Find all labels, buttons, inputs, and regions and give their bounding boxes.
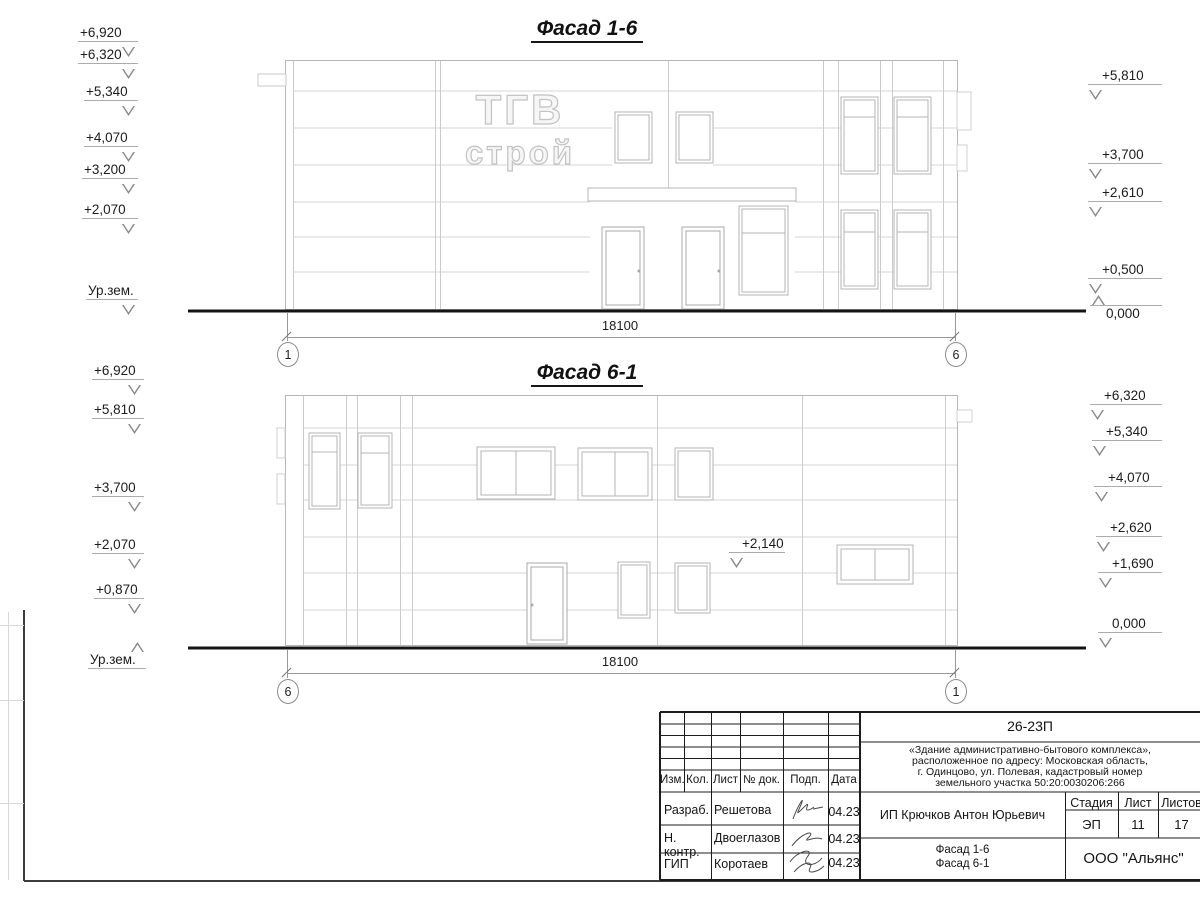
elevation-arrow-icon (122, 152, 135, 162)
window (739, 206, 788, 295)
window (837, 545, 913, 584)
col-header-ndok: № док. (740, 774, 783, 786)
elevation-arrow-icon (1095, 492, 1108, 502)
signature (786, 795, 826, 823)
row-name: Коротаев (714, 857, 782, 871)
elevation-value: +6,320 (1090, 388, 1146, 403)
door-handle (718, 270, 721, 273)
elevation-arrow-icon (1097, 542, 1110, 552)
stage-value: ЭП (1065, 817, 1118, 832)
elevation-value: +1,690 (1098, 556, 1154, 571)
entrance-canopy (588, 188, 796, 201)
elevation-mark: +2,620 (1096, 520, 1162, 537)
door-handle (531, 604, 534, 607)
elevation-arrow-icon (128, 559, 141, 569)
col-header-kol: Кол. (684, 774, 711, 786)
elevation-arrow-icon (122, 184, 135, 194)
elevation-value: +2,070 (92, 537, 136, 552)
elevation-arrow-icon (128, 502, 141, 512)
window (676, 112, 713, 163)
facade-1-6-title: Фасад 1-6 (437, 17, 737, 41)
window (894, 97, 931, 174)
elevation-arrow-icon (1099, 638, 1112, 648)
company-name: ООО "Альянс" (1067, 850, 1200, 867)
elevation-arrow-icon (1089, 169, 1102, 179)
stage-label: Стадия (1065, 796, 1118, 810)
side-projection (957, 410, 972, 422)
elevation-arrow-icon (730, 558, 743, 568)
elevation-value: +2,610 (1088, 185, 1144, 200)
row-role: Разраб. (664, 803, 710, 817)
elevation-mark: +4,070 (84, 130, 138, 147)
elevation-mark: 0,000 (1098, 616, 1162, 633)
elevation-mark: +2,140 (729, 536, 785, 553)
row-name: Двоеглазов (714, 831, 784, 845)
logo-tgv: ТГВ (450, 86, 590, 134)
elevation-value: +5,340 (1092, 424, 1148, 439)
elevation-value: +2,140 (729, 536, 784, 551)
dimension-value: 18100 (590, 654, 650, 669)
elevation-mark: +2,610 (1088, 185, 1162, 202)
row-name: Решетова (714, 803, 782, 817)
elevation-arrow-icon (1089, 207, 1102, 217)
elevation-mark: +6,320 (78, 47, 138, 64)
elevation-value: +2,070 (82, 202, 126, 217)
window (578, 448, 652, 500)
col-header-list: Лист (711, 774, 740, 786)
elevation-value: +6,920 (92, 363, 136, 378)
window (477, 447, 555, 499)
elevation-value: +5,810 (1088, 68, 1144, 83)
elevation-value: +5,340 (84, 84, 128, 99)
sheets-value: 17 (1158, 817, 1200, 832)
window (841, 210, 878, 289)
elevation-value: +2,620 (1096, 520, 1152, 535)
elevation-arrow-icon (1091, 410, 1104, 420)
elevation-arrow-icon (131, 642, 144, 652)
door-handle (638, 270, 641, 273)
elevation-value: 0,000 (1098, 616, 1146, 631)
elevation-value: 0,000 (1090, 305, 1162, 322)
facade-6-1-title: Фасад 6-1 (437, 361, 737, 385)
elevation-mark: +5,810 (92, 402, 144, 419)
window (358, 433, 392, 508)
sheet-label: Лист (1118, 796, 1158, 810)
window (675, 563, 710, 613)
elevation-mark: +6,920 (78, 25, 138, 42)
elevation-mark: +2,070 (82, 202, 138, 219)
elevation-mark: +0,870 (94, 582, 144, 599)
row-date: 04.23 (828, 832, 860, 846)
elevation-mark: +3,700 (1088, 147, 1162, 164)
sheet-title-line: Фасад 1-6 (862, 844, 1063, 856)
elevation-mark: +2,070 (92, 537, 144, 554)
elevation-mark: +5,810 (1088, 68, 1162, 85)
window (841, 97, 878, 174)
elevation-value: +5,810 (92, 402, 136, 417)
elevation-mark: Ур.зем. (88, 652, 146, 669)
elevation-value: +4,070 (1094, 470, 1150, 485)
window (618, 562, 650, 618)
sheet-title-line: Фасад 6-1 (862, 858, 1063, 870)
elevation-mark: +3,200 (82, 162, 138, 179)
axis-bubble: 1 (945, 679, 967, 704)
filing-boxes (0, 612, 24, 880)
row-role: ГИП (664, 857, 710, 871)
window (675, 448, 713, 500)
axis-bubble: 6 (277, 679, 299, 704)
row-date: 04.23 (828, 805, 860, 819)
elevation-value: +3,700 (92, 480, 136, 495)
window (894, 210, 931, 289)
side-projection (277, 428, 285, 458)
dimension-value: 18100 (590, 318, 650, 333)
col-header-podp: Подп. (783, 774, 828, 786)
title-text: Фасад 6-1 (531, 361, 644, 387)
elevation-mark: +5,340 (84, 84, 138, 101)
elevation-arrow-icon (1099, 578, 1112, 588)
elevation-value: +0,500 (1088, 262, 1144, 277)
row-date: 04.23 (828, 856, 860, 870)
window (309, 433, 340, 509)
elevation-mark: 0,000 (1090, 296, 1162, 324)
elevation-arrow-icon (1089, 90, 1102, 100)
elevation-value: Ур.зем. (88, 652, 136, 667)
door (527, 563, 567, 644)
doc-number: 26-23П (862, 718, 1198, 734)
elevation-value: +3,200 (82, 162, 126, 177)
client-name: ИП Крючков Антон Юрьевич (862, 808, 1063, 822)
elevation-value: +0,870 (94, 582, 138, 597)
elevation-mark: +0,500 (1088, 262, 1162, 279)
elevation-value: Ур.зем. (86, 283, 134, 298)
elevation-arrow-icon (122, 224, 135, 234)
elevation-arrow-icon (122, 305, 135, 315)
elevation-mark: +6,320 (1090, 388, 1162, 405)
project-description-line: земельного участка 50:20:0030206:266 (862, 778, 1198, 789)
elevation-value: +3,700 (1088, 147, 1144, 162)
title-text: Фасад 1-6 (531, 17, 644, 43)
elevation-arrow-icon (128, 424, 141, 434)
elevation-arrow-icon (1092, 295, 1105, 305)
elevation-arrow-icon (1093, 446, 1106, 456)
window (615, 112, 652, 163)
elevation-value: +6,920 (78, 25, 122, 40)
roof-projection (258, 74, 286, 86)
side-projection (957, 145, 967, 171)
logo-stroy: строй (450, 134, 590, 172)
signature (784, 828, 828, 876)
elevation-value: +4,070 (84, 130, 128, 145)
sheets-label: Листов (1158, 796, 1200, 810)
facade-1-6-drawing (258, 61, 971, 310)
col-header-izm: Изм. (660, 774, 684, 786)
door (682, 227, 724, 309)
door (602, 227, 644, 309)
elevation-arrow-icon (128, 604, 141, 614)
side-projection (957, 92, 971, 130)
elevation-arrow-icon (128, 385, 141, 395)
row-role: Н. контр. (664, 831, 712, 859)
side-projection (277, 474, 285, 504)
elevation-arrow-icon (122, 106, 135, 116)
elevation-value: +6,320 (78, 47, 122, 62)
elevation-mark: +3,700 (92, 480, 144, 497)
elevation-mark: +5,340 (1092, 424, 1162, 441)
elevation-arrow-icon (122, 69, 135, 79)
elevation-mark: Ур.зем. (86, 283, 138, 300)
elevation-mark: +1,690 (1098, 556, 1162, 573)
elevation-arrow-icon (1089, 284, 1102, 294)
elevation-mark: +6,920 (92, 363, 144, 380)
col-header-data: Дата (828, 774, 860, 786)
facade-6-1-drawing (277, 396, 972, 646)
drawing-sheet: Фасад 1-6 Фасад 6-1 ТГВ строй +6,920 +6,… (0, 0, 1200, 900)
axis-bubble: 6 (945, 342, 967, 367)
axis-bubble: 1 (277, 342, 299, 367)
sheet-value: 11 (1118, 817, 1158, 832)
elevation-mark: +4,070 (1094, 470, 1162, 487)
